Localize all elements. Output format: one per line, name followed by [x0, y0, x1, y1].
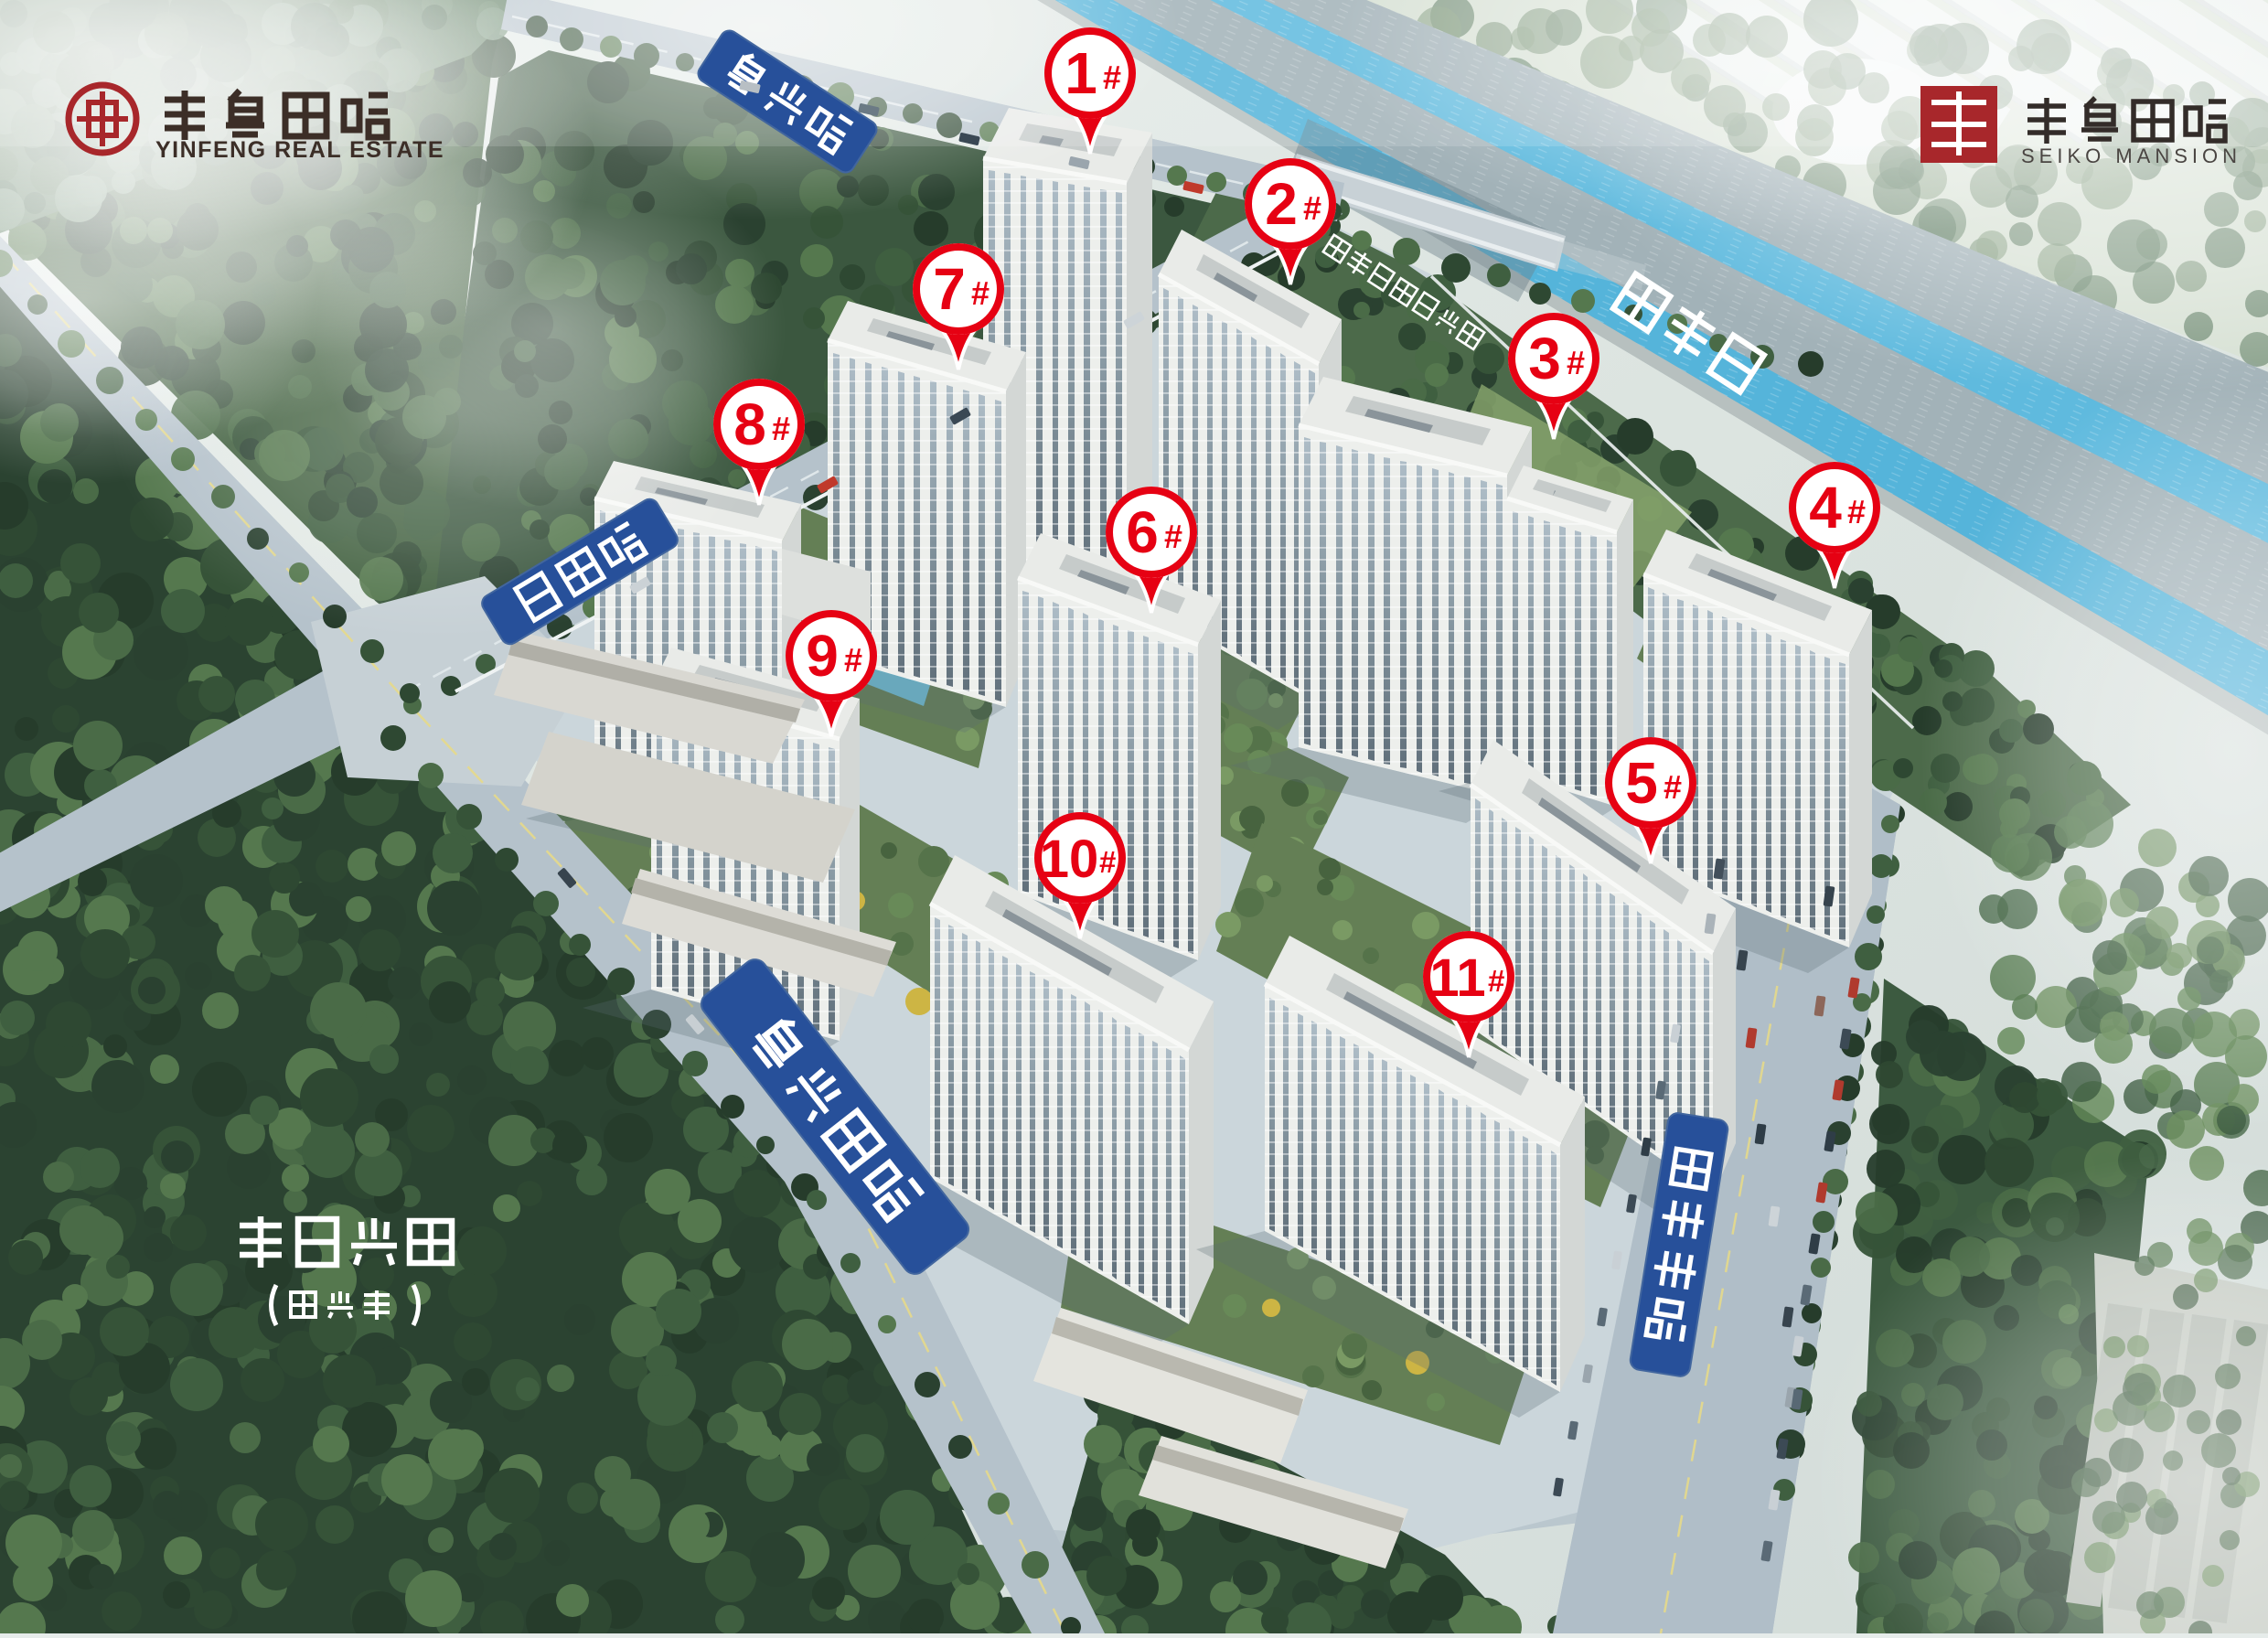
svg-text:#: # — [772, 410, 790, 447]
svg-text:1: 1 — [1064, 40, 1097, 106]
svg-text:2: 2 — [1265, 171, 1298, 237]
svg-text:#: # — [1664, 768, 1682, 806]
svg-text:YINFENG REAL ESTATE: YINFENG REAL ESTATE — [155, 137, 444, 163]
svg-text:#: # — [1164, 518, 1182, 555]
svg-text:#: # — [1488, 964, 1504, 998]
svg-text:11: 11 — [1429, 948, 1485, 1008]
svg-text:#: # — [1847, 493, 1866, 530]
svg-text:#: # — [971, 274, 990, 312]
svg-text:#: # — [1103, 59, 1121, 96]
svg-text:#: # — [1099, 845, 1116, 879]
svg-text:#: # — [844, 641, 862, 679]
svg-text:7: 7 — [933, 256, 966, 322]
svg-text:3: 3 — [1528, 326, 1561, 391]
svg-text:10: 10 — [1040, 830, 1099, 889]
svg-text:9: 9 — [806, 623, 839, 689]
svg-text:#: # — [1303, 189, 1321, 227]
svg-text:6: 6 — [1126, 499, 1159, 565]
svg-text:5: 5 — [1625, 750, 1658, 816]
svg-text:8: 8 — [733, 391, 766, 457]
svg-text:4: 4 — [1809, 475, 1842, 541]
svg-text:SEIKO MANSION: SEIKO MANSION — [2021, 145, 2241, 167]
svg-text:#: # — [1567, 344, 1585, 381]
